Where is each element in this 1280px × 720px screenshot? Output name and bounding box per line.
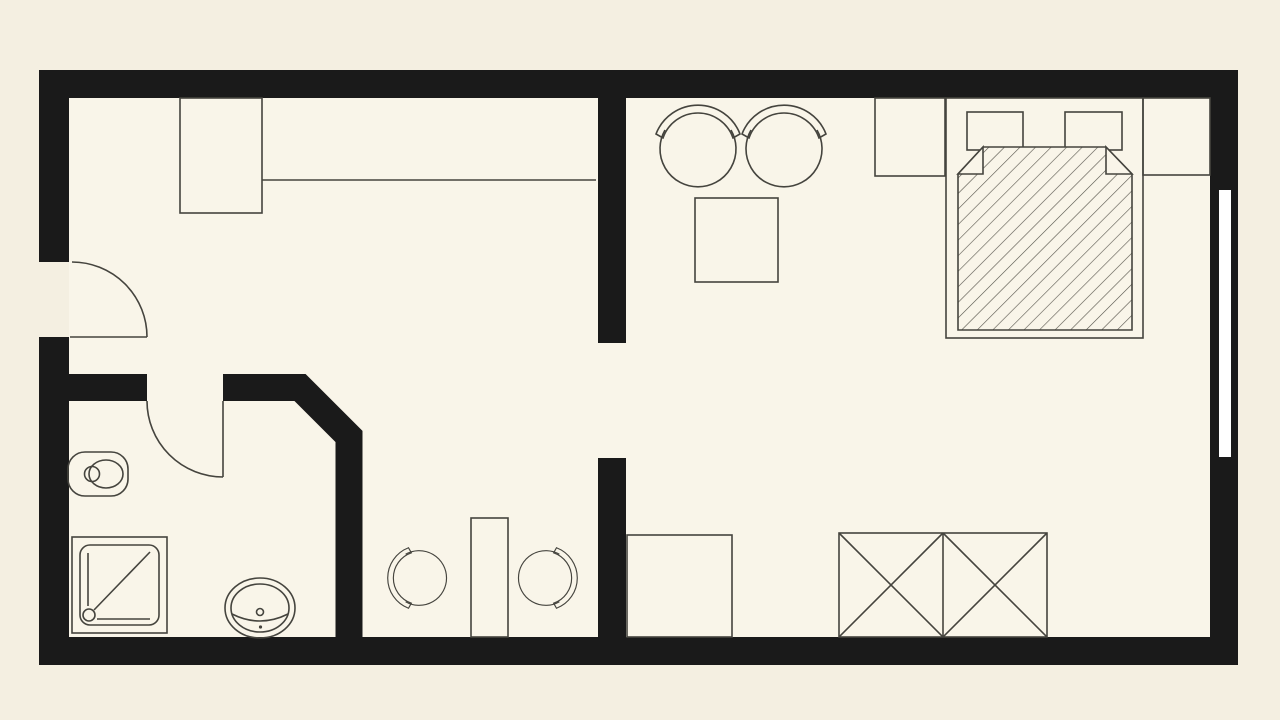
window: [1219, 190, 1231, 457]
floorplan-elements: [39, 70, 1238, 665]
wall-left-upper: [39, 70, 69, 262]
floorplan-canvas: [0, 0, 1280, 720]
wall-left-lower: [39, 337, 69, 665]
wall-divider-upper: [598, 95, 626, 343]
wall-top: [39, 70, 1238, 98]
wall-bathroom-entry: [69, 374, 147, 401]
wall-divider-lower: [598, 458, 626, 640]
wall-bottom: [39, 637, 1238, 665]
pillow-right: [1065, 112, 1122, 150]
washbasin-drain-dot: [259, 625, 262, 628]
pillow-left: [967, 112, 1023, 150]
